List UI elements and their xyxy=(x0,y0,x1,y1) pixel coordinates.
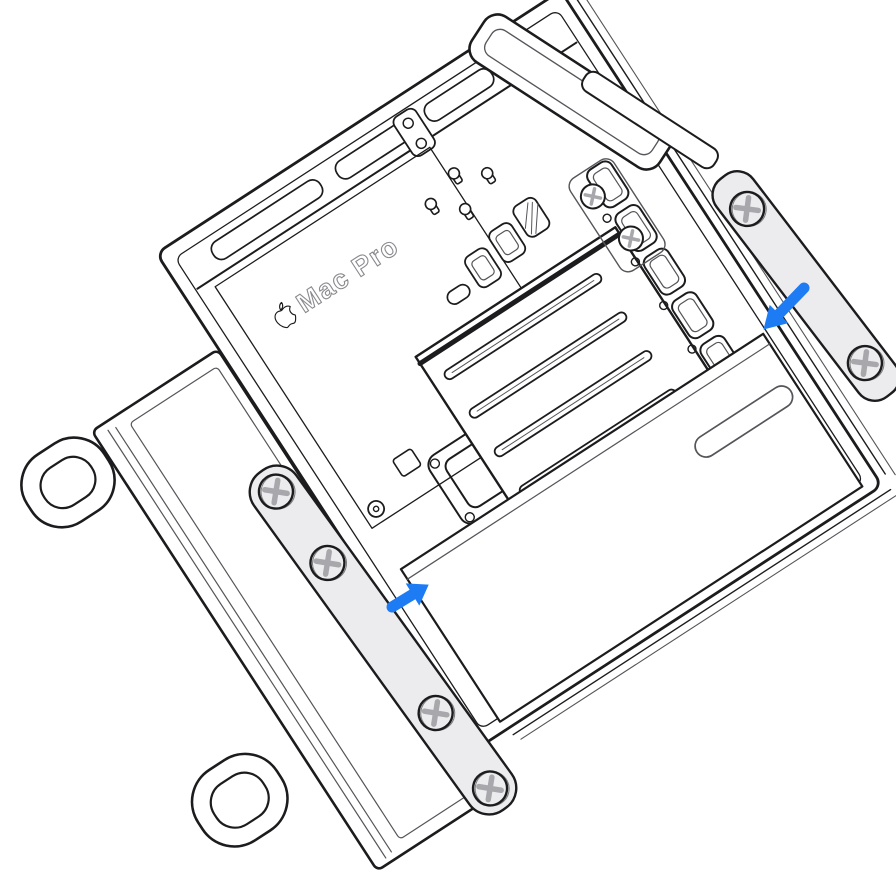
mac-pro-open-case-illustration: Mac Pro xyxy=(0,0,896,872)
foot-loop-bottom xyxy=(177,739,302,861)
illustration-canvas: Mac Pro xyxy=(0,0,896,872)
